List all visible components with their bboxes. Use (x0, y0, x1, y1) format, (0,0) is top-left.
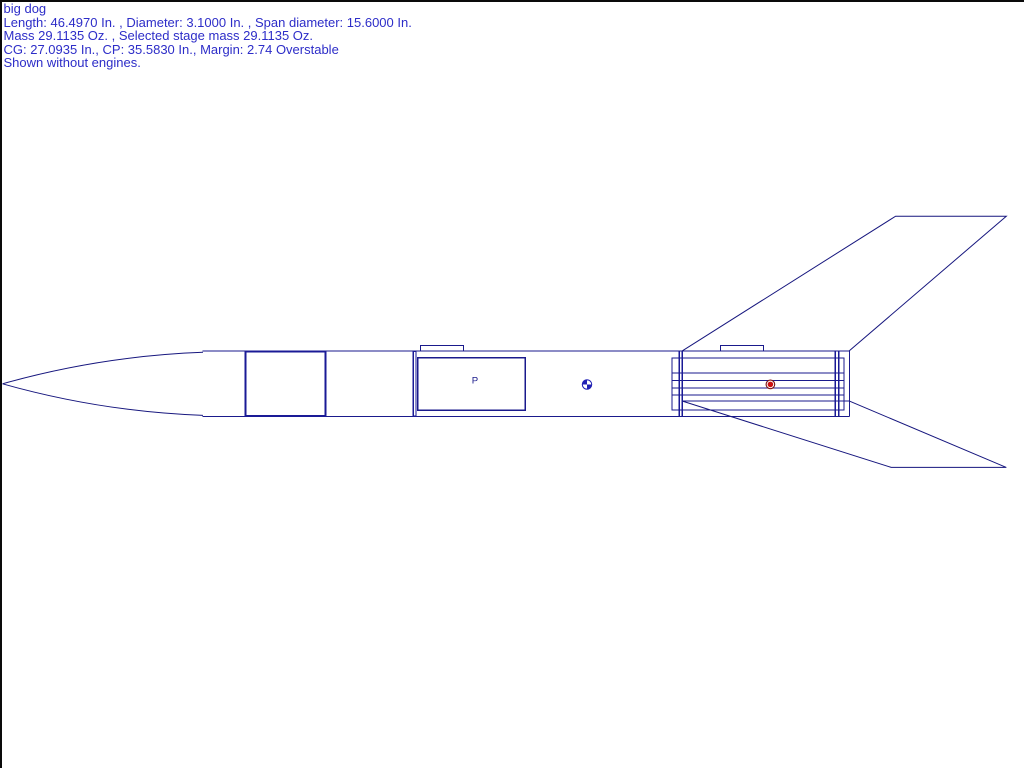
svg-text:P: P (472, 376, 478, 387)
